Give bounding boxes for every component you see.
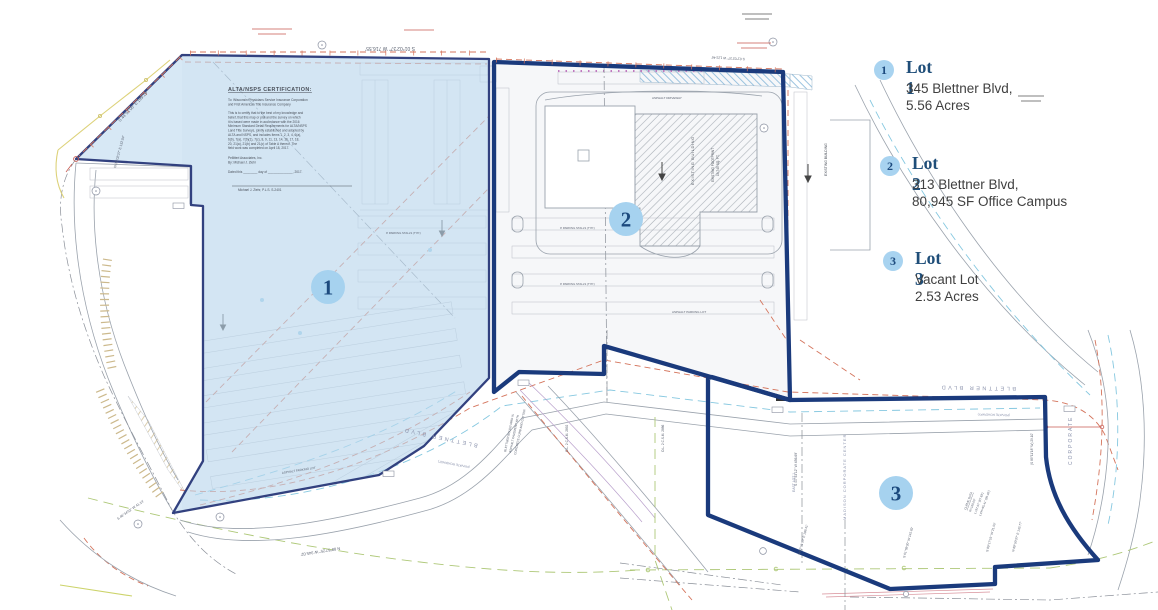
svg-text:This is to certify that to the: This is to certify that to the best of m… bbox=[228, 111, 303, 115]
svg-text:EXISTING FOOTPRINT: EXISTING FOOTPRINT bbox=[711, 148, 715, 182]
svg-text:S 89°17'51" W 21.55': S 89°17'51" W 21.55' bbox=[985, 522, 997, 552]
svg-text:Michael J. Ziehr, P.L.S. S-24: Michael J. Ziehr, P.L.S. S-2401 bbox=[238, 188, 282, 192]
legend-line: 5.56 Acres bbox=[906, 97, 970, 114]
cert-title: ALTA/NSPS CERTIFICATION: bbox=[228, 87, 312, 93]
svg-text:9' PARKING STALLS (TYP.): 9' PARKING STALLS (TYP.) bbox=[560, 282, 595, 286]
legend-line: 2.53 Acres bbox=[915, 288, 979, 305]
svg-text:N 02°51'30" E 188.41': N 02°51'30" E 188.41' bbox=[797, 524, 809, 555]
svg-text:S 01°02'37" W 716.55': S 01°02'37" W 716.55' bbox=[365, 45, 415, 51]
svg-text:ASPHALT DRIVEWAY: ASPHALT DRIVEWAY bbox=[652, 96, 682, 100]
marker-lot2: 2 bbox=[609, 202, 643, 236]
svg-text:To: Wisconsin Physicians Servi: To: Wisconsin Physicians Service Insuran… bbox=[228, 98, 308, 102]
legend-line: 313 Blettner Blvd, bbox=[912, 176, 1019, 193]
legend-line: 345 Blettner Blvd, bbox=[906, 80, 1013, 97]
svg-text:9' PARKING STALLS (TYP.): 9' PARKING STALLS (TYP.) bbox=[386, 231, 421, 235]
legend-badge-1: 1 bbox=[874, 60, 894, 80]
svg-text:N 89°50'37" E 142.77': N 89°50'37" E 142.77' bbox=[1011, 521, 1023, 552]
road-name-corporate: CORPORATE bbox=[1068, 416, 1074, 465]
svg-text:field work was completed on Ap: field work was completed on April 18, 20… bbox=[228, 146, 289, 150]
svg-text:S 01°02'37" W 123.46': S 01°02'37" W 123.46' bbox=[711, 55, 745, 61]
site-plan-flyer: ALTA/NSPS CERTIFICATION: To: Wisconsin P… bbox=[0, 0, 1158, 610]
marker-lot1: 1 bbox=[311, 270, 345, 304]
east-adjacent-linework bbox=[794, 80, 1098, 395]
legend-line: 80,945 SF Office Campus bbox=[912, 193, 1067, 210]
svg-text:Pellitteri Associates, Inc.: Pellitteri Associates, Inc. bbox=[228, 156, 262, 160]
marker-lot3: 3 bbox=[879, 476, 913, 510]
road-name-blettner-east: BLETTNER BLVD bbox=[939, 384, 1016, 391]
svg-text:it is based were made in accor: it is based were made in accordance with… bbox=[228, 120, 300, 124]
svg-text:EXISTING BUILDING: EXISTING BUILDING bbox=[690, 136, 695, 185]
svg-text:S 01°09'20" W 145.82': S 01°09'20" W 145.82' bbox=[902, 526, 914, 558]
svg-text:19,745 SQ. FT.: 19,745 SQ. FT. bbox=[716, 154, 720, 176]
svg-text:EXISTING BUILDING: EXISTING BUILDING bbox=[824, 143, 828, 176]
svg-text:belief, that this map or plat: belief, that this map or plat and the su… bbox=[228, 115, 301, 119]
svg-text:N 88°57'25" W 345.02': N 88°57'25" W 345.02' bbox=[300, 546, 341, 557]
svg-text:ALTA and NSPS, and includes It: ALTA and NSPS, and includes Items 1, 2, … bbox=[228, 133, 301, 137]
svg-text:By: Michael J. Ziehr: By: Michael J. Ziehr bbox=[228, 161, 257, 165]
svg-text:O.L. 2 C.S.M. 2886: O.L. 2 C.S.M. 2886 bbox=[661, 424, 665, 452]
svg-text:9' PARKING STALLS (TYP.): 9' PARKING STALLS (TYP.) bbox=[560, 226, 595, 230]
svg-text:20, 21(a), 21(b) and 21(c) of: 20, 21(a), 21(b) and 21(c) of Table A th… bbox=[228, 142, 297, 146]
svg-text:Minimum Standard Detail Requir: Minimum Standard Detail Requirements for… bbox=[228, 124, 307, 128]
svg-text:EAST LOT 1: EAST LOT 1 bbox=[792, 473, 796, 492]
svg-text:ASPHALT PARKING LOT: ASPHALT PARKING LOT bbox=[672, 310, 706, 314]
svg-text:and First American Title Insur: and First American Title Insurance Compa… bbox=[228, 103, 291, 107]
svg-text:MADISON CORPORATE CENTER: MADISON CORPORATE CENTER bbox=[842, 434, 847, 520]
svg-text:2: 2 bbox=[621, 208, 632, 232]
svg-text:S 46°34'52" W 41.14': S 46°34'52" W 41.14' bbox=[116, 499, 145, 521]
svg-text:O.L. 2 C.S.M. 2892: O.L. 2 C.S.M. 2892 bbox=[565, 424, 569, 452]
legend-badge-3: 3 bbox=[883, 251, 903, 271]
svg-text:(PRIVATE ROADWAY): (PRIVATE ROADWAY) bbox=[978, 412, 1010, 417]
svg-text:(PRIVATE ROADWAY): (PRIVATE ROADWAY) bbox=[438, 459, 471, 469]
svg-text:Dated this ________ day of ___: Dated this ________ day of _____________… bbox=[228, 170, 303, 174]
svg-text:(S 89°11'18" W) 29.10': (S 89°11'18" W) 29.10' bbox=[1030, 433, 1034, 465]
legend-badge-2: 2 bbox=[880, 156, 900, 176]
legend-line: Vacant Lot bbox=[915, 271, 979, 288]
lot2-interior-linework bbox=[480, 62, 812, 401]
svg-text:1: 1 bbox=[323, 276, 334, 300]
svg-text:6(b), 7(a), 7(b)(1), 7(c), 8,: 6(b), 7(a), 7(b)(1), 7(c), 8, 9, 11, 13,… bbox=[228, 137, 299, 141]
svg-text:3: 3 bbox=[891, 482, 902, 506]
svg-text:Land Title Surveys, jointly es: Land Title Surveys, jointly established … bbox=[228, 129, 304, 133]
